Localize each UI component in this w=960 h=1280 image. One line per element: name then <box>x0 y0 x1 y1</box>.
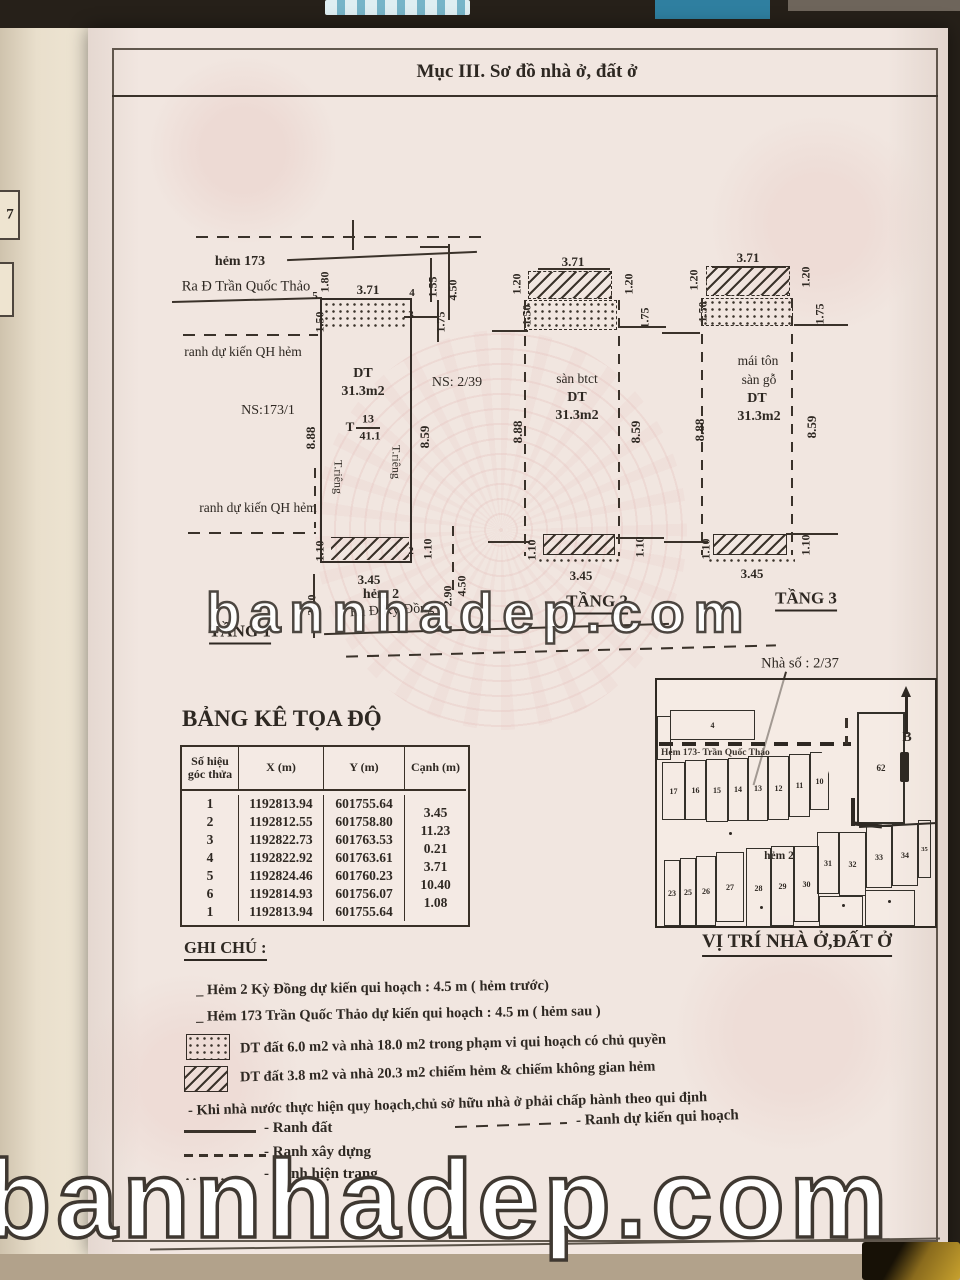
map-parcel-34: 34 <box>892 824 918 886</box>
parcel-number: 14 <box>734 785 742 794</box>
dimension-tick <box>492 330 528 332</box>
table-cell: 1 <box>182 795 239 813</box>
map-parcel-10: 10 <box>810 752 829 810</box>
map-parcel-29: 29 <box>771 846 794 926</box>
parcel-number: 62 <box>877 763 886 773</box>
parcel-number: 15 <box>713 786 721 795</box>
map-parcel-35: 35 <box>918 820 931 878</box>
map-parcel-14: 14 <box>728 758 748 821</box>
floor2-dim-110-left: 1.10 <box>525 540 540 561</box>
parcel-number: 17 <box>670 787 678 796</box>
floor1-dim-888: 8.88 <box>303 427 319 450</box>
scanned-property-document: 7 Mục III. Sơ đồ nhà ở, đất ở hẻm 173 Ra… <box>0 0 960 1280</box>
parcel-number: 31 <box>824 859 832 868</box>
floor2-area-label: DT <box>567 390 586 406</box>
floor2-plot-side-right <box>618 300 620 556</box>
parcel-number: 33 <box>875 853 883 862</box>
floor3-bottom-strip-hatched <box>713 534 787 555</box>
map-parcel-62: 62 <box>857 712 905 824</box>
floor3-dim-859: 8.59 <box>804 416 820 439</box>
floor2-material: sàn btct <box>556 371 598 387</box>
map-parcel-30: 30 <box>794 846 819 922</box>
planning-boundary-dash-top <box>196 236 481 238</box>
table-cell: 1192812.55 <box>239 813 324 831</box>
table-cell: 3.71 <box>405 858 466 876</box>
floor1-point-3: 3 <box>408 309 414 321</box>
parcel-number: 32 <box>849 860 857 869</box>
floor2-bottom-dotted-line <box>537 557 623 563</box>
map-parcel-15: 15 <box>706 759 728 822</box>
floor1-dim-450: 4.50 <box>446 280 461 301</box>
floor2-dim-888: 8.88 <box>510 421 526 444</box>
map-dot <box>729 832 732 835</box>
floor3-dim-110-left: 1.10 <box>699 539 714 560</box>
floor1-lot-code: T <box>346 419 355 435</box>
table-cell: 1192824.46 <box>239 867 324 885</box>
floor1-encroach-strip-hatched <box>331 537 409 560</box>
table-cell: 601755.64 <box>324 795 405 813</box>
map-dot <box>760 906 763 909</box>
floor1-dim-150: 1.50 <box>313 312 328 333</box>
dimension-tick <box>620 326 666 328</box>
floor1-area-label: DT <box>353 366 372 382</box>
parcel-number: 10 <box>816 777 824 786</box>
map-parcel-16: 16 <box>685 760 706 820</box>
legend-swatch-dotted <box>186 1034 230 1060</box>
map-parcel-13: 13 <box>748 756 768 821</box>
section-title: Mục III. Sơ đồ nhà ở, đất ở <box>416 61 637 83</box>
floor3-planning-strip-dotted <box>701 298 793 326</box>
floor3-dim-top: 3.71 <box>737 250 760 266</box>
coords-col-header-y: Y (m) <box>324 747 405 791</box>
table-cell: 1.08 <box>405 894 466 912</box>
tick-line <box>352 220 354 250</box>
table-cell: 601763.53 <box>324 831 405 849</box>
legend-swatch-hatched <box>184 1066 228 1092</box>
table-cell: 1192813.94 <box>239 903 324 921</box>
floor1-alley-top-label: hẻm 173 <box>215 254 265 270</box>
floor2-dim-110-right: 1.10 <box>633 537 648 558</box>
map-parcel-32: 32 <box>839 832 866 896</box>
table-cell: 1192813.94 <box>239 795 324 813</box>
map-parcel-unlabeled-2 <box>865 890 915 926</box>
floor2-bottom-strip-hatched <box>543 534 615 555</box>
parcel-number: 27 <box>726 883 734 892</box>
floor3-plot-side-right <box>791 298 793 555</box>
floor1-boundary-top-label: ranh dự kiến QH hẻm <box>184 344 302 360</box>
floor1-dim-110-right: 1.10 <box>421 539 436 560</box>
title-divider-line <box>112 95 938 97</box>
floor1-dim-175: 1.75 <box>434 312 449 333</box>
parcel-number: 13 <box>754 784 762 793</box>
parcel-number: 16 <box>692 786 700 795</box>
dimension-line <box>538 268 610 270</box>
map-street-dash-branch <box>845 718 848 744</box>
north-flag-mark <box>900 752 909 782</box>
floor1-dim-110-left: 1.10 <box>313 541 328 562</box>
floor3-area-label: DT <box>747 391 766 407</box>
notes-heading: GHI CHÚ : <box>184 938 267 961</box>
floor3-area-value: 31.3m2 <box>737 409 780 425</box>
location-map: 4 62 B Hẻm 173- Trần Quốc Thảo 17 16 15 … <box>655 678 937 928</box>
floor3-bottom-dotted-line <box>707 557 795 563</box>
table-cell: 3 <box>182 831 239 849</box>
floor2-dim-859: 8.59 <box>628 421 644 444</box>
floor1-ns-right: NS: 2/39 <box>432 375 482 391</box>
map-parcel-11: 11 <box>789 754 810 817</box>
floor3-dim-120-left: 1.20 <box>687 270 702 291</box>
floor1-private-right: T.riêng <box>389 445 404 479</box>
planning-boundary-dash-vertical <box>314 468 316 528</box>
floor1-dim-180: 1.80 <box>318 272 333 293</box>
parcel-number: 25 <box>684 888 692 897</box>
table-cell: 11.23 <box>405 822 466 840</box>
floor2-dim-120-right: 1.20 <box>622 274 637 295</box>
table-cell: 3.45 <box>405 804 466 822</box>
north-arrow-shaft <box>905 696 908 734</box>
floor1-dim-859: 8.59 <box>417 426 433 449</box>
parcel-number: 26 <box>702 887 710 896</box>
legend-line-solid <box>184 1130 256 1133</box>
map-parcel-23: 23 <box>664 860 680 926</box>
table-cell: 1192822.92 <box>239 849 324 867</box>
coords-col-header-x: X (m) <box>239 747 324 791</box>
fabric-item-right <box>655 0 770 19</box>
table-cell: 5 <box>182 867 239 885</box>
planning-boundary-dash-bottom <box>188 532 316 534</box>
map-street-dash <box>659 742 851 746</box>
floor1-lot-number: 13 <box>362 412 374 427</box>
floor1-ns-left: NS:173/1 <box>241 403 295 419</box>
fabric-item-left <box>325 0 470 15</box>
floor1-planning-strip-dotted <box>323 301 409 331</box>
parcel-number: 12 <box>775 784 783 793</box>
side-page-number: 7 <box>6 207 14 224</box>
table-cell: 601756.07 <box>324 885 405 903</box>
location-map-title: VỊ TRÍ NHÀ Ở,ĐẤT Ở <box>702 931 892 957</box>
map-north-label: B <box>902 730 911 746</box>
coords-col-header-edge: Cạnh (m) <box>405 747 466 791</box>
floor3-material-2: sàn gỗ <box>742 372 777 388</box>
side-tab-box-2 <box>0 262 14 317</box>
note-legend-land: - Ranh đất <box>264 1120 332 1137</box>
floor3-dim-888: 8.88 <box>692 419 708 442</box>
floor1-alley-top-direction: Ra Đ Trần Quốc Thảo <box>182 279 311 296</box>
floor2-dim-120-left: 1.20 <box>510 274 525 295</box>
floor1-boundary-bottom-label: ranh dự kiến QH hẻm <box>199 500 317 516</box>
map-parcel-27: 27 <box>716 852 744 922</box>
floor1-lot-area: 41.1 <box>360 429 381 444</box>
parcel-number: 28 <box>755 884 763 893</box>
parcel-number: 35 <box>921 846 928 853</box>
floor3-material-1: mái tôn <box>738 353 779 369</box>
map-parcel-26: 26 <box>696 856 716 926</box>
dimension-tick <box>662 332 700 334</box>
map-parcel-17: 17 <box>662 762 685 820</box>
parcel-number: 4 <box>711 721 715 730</box>
table-cell: 601760.23 <box>324 867 405 885</box>
map-dot <box>888 900 891 903</box>
table-cell: 4 <box>182 849 239 867</box>
table-cell: 1192822.73 <box>239 831 324 849</box>
map-parcel-31: 31 <box>817 832 839 894</box>
table-cell: 6 <box>182 885 239 903</box>
floor3-dim-110-right: 1.10 <box>799 535 814 556</box>
parcel-number: 11 <box>796 781 804 790</box>
coords-table-heading: BẢNG KÊ TỌA ĐỘ <box>182 706 382 732</box>
watermark-bottom: bannhadep.com <box>0 1136 892 1263</box>
parcel-number: 29 <box>779 882 787 891</box>
map-parcel-25: 25 <box>680 858 696 926</box>
table-cell: 10.40 <box>405 876 466 894</box>
map-parcel-4: 4 <box>670 710 755 740</box>
floor1-dim-top: 3.71 <box>357 282 380 298</box>
floor1-private-left: T.riêng <box>331 460 346 494</box>
floor3-encroach-strip-hatched <box>706 266 790 296</box>
planning-boundary-dash-left <box>183 334 318 336</box>
floor2-planning-strip-dotted <box>524 300 617 330</box>
table-cell: 1192814.93 <box>239 885 324 903</box>
coords-col-header-id: Số hiệu góc thửa <box>182 747 239 791</box>
floor3-dim-175: 1.75 <box>813 304 828 325</box>
map-parcel-28: 28 <box>746 848 771 928</box>
floor2-dim-150: 1.50 <box>520 305 535 326</box>
map-parcel-12: 12 <box>768 756 789 820</box>
table-cell: 601755.64 <box>324 903 405 921</box>
coords-table: Số hiệu góc thửa X (m) Y (m) Cạnh (m) 1 … <box>180 745 470 927</box>
floor1-point-4: 4 <box>409 287 415 299</box>
floor3-dim-120-right: 1.20 <box>799 267 814 288</box>
house-number-label: Nhà số : 2/37 <box>761 656 839 673</box>
shelf-edge <box>788 0 960 11</box>
floor1-dim-155: 1.55 <box>426 277 441 298</box>
map-parcel-33: 33 <box>866 826 892 888</box>
table-cell: 601758.80 <box>324 813 405 831</box>
parcel-number: 30 <box>803 880 811 889</box>
map-dot <box>842 904 845 907</box>
watermark-middle: bannhadep.com <box>206 580 752 645</box>
floor3-title: TẦNG 3 <box>775 589 837 612</box>
map-parcel-unlabeled-1 <box>819 896 863 926</box>
floor2-encroach-strip-hatched <box>528 271 612 299</box>
table-cell: 2 <box>182 813 239 831</box>
parcel-number: 23 <box>668 889 676 898</box>
parcel-number: 34 <box>901 851 909 860</box>
table-cell: 1 <box>182 903 239 921</box>
floor1-point-2: 2 <box>408 545 414 557</box>
dimension-tick <box>420 246 450 248</box>
dimension-tick <box>794 324 848 326</box>
table-cell: 601763.61 <box>324 849 405 867</box>
table-cell: 0.21 <box>405 840 466 858</box>
floor1-area-value: 31.3m2 <box>341 384 384 400</box>
floor2-area-value: 31.3m2 <box>555 408 598 424</box>
